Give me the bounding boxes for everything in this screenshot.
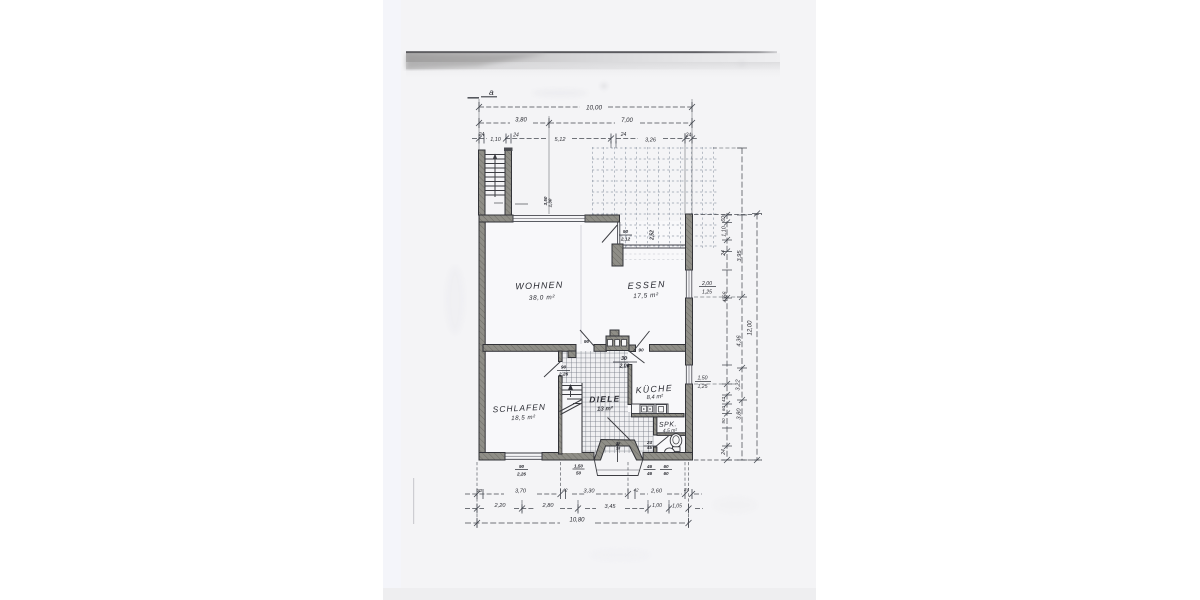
svg-text:46: 46 (646, 464, 653, 469)
svg-text:2,60: 2,60 (650, 489, 663, 495)
svg-text:DIELE: DIELE (589, 393, 621, 404)
svg-text:10,80: 10,80 (569, 518, 585, 524)
svg-text:4,36: 4,36 (737, 335, 743, 347)
svg-text:1,25: 1,25 (702, 290, 712, 296)
svg-text:3,70: 3,70 (515, 489, 527, 495)
svg-text:1,05: 1,05 (672, 504, 682, 510)
svg-text:2,52: 2,52 (650, 230, 656, 241)
svg-text:3,22: 3,22 (736, 379, 742, 391)
svg-text:3,45: 3,45 (605, 504, 617, 510)
svg-text:13 m²: 13 m² (597, 405, 614, 413)
svg-text:24: 24 (721, 250, 727, 257)
svg-text:60: 60 (721, 216, 727, 222)
svg-text:42: 42 (633, 488, 639, 493)
svg-text:3,30: 3,30 (584, 489, 596, 495)
svg-text:2,26: 2,26 (516, 472, 526, 477)
svg-text:1,10: 1,10 (722, 226, 728, 237)
svg-text:1,10: 1,10 (490, 137, 501, 143)
svg-text:1,50: 1,50 (697, 376, 707, 382)
svg-text:90: 90 (638, 348, 644, 354)
svg-text:2,26: 2,26 (558, 372, 569, 378)
svg-text:90: 90 (721, 418, 726, 424)
svg-text:42: 42 (562, 488, 568, 493)
svg-text:90: 90 (584, 339, 590, 345)
svg-text:1,00: 1,00 (652, 503, 662, 509)
svg-text:24: 24 (721, 449, 727, 456)
svg-text:3,95: 3,95 (737, 250, 743, 262)
svg-text:24: 24 (620, 132, 627, 138)
svg-text:1,50: 1,50 (574, 464, 583, 469)
svg-text:10,00: 10,00 (586, 105, 602, 112)
svg-text:2,80: 2,80 (542, 503, 555, 509)
svg-text:60: 60 (663, 471, 669, 476)
svg-text:ESSEN: ESSEN (627, 279, 666, 291)
svg-text:WOHNEN: WOHNEN (515, 280, 564, 292)
svg-text:a: a (489, 87, 494, 97)
svg-text:50: 50 (576, 471, 582, 476)
svg-text:42: 42 (721, 397, 726, 403)
svg-text:4,66: 4,66 (723, 291, 729, 303)
svg-text:8,4 m²: 8,4 m² (647, 394, 665, 401)
svg-text:90: 90 (519, 464, 525, 469)
svg-text:5,12: 5,12 (555, 137, 567, 143)
svg-text:17,5 m²: 17,5 m² (633, 292, 659, 300)
svg-text:1,25: 1,25 (697, 384, 707, 390)
svg-text:90: 90 (561, 365, 567, 371)
svg-text:38,0 m²: 38,0 m² (529, 294, 556, 302)
svg-text:90: 90 (623, 229, 629, 235)
svg-text:12,00: 12,00 (748, 320, 754, 336)
svg-text:2,12: 2,12 (620, 237, 631, 243)
svg-text:3,26: 3,26 (645, 138, 657, 144)
svg-text:24: 24 (512, 133, 519, 139)
svg-text:2,06: 2,06 (618, 364, 629, 370)
svg-text:24: 24 (478, 132, 485, 138)
svg-text:3,80: 3,80 (737, 408, 743, 420)
svg-text:24: 24 (685, 133, 692, 139)
svg-text:18,5 m²: 18,5 m² (511, 414, 536, 422)
svg-text:18: 18 (616, 446, 621, 451)
svg-text:60: 60 (721, 406, 726, 412)
svg-text:7,00: 7,00 (621, 118, 633, 124)
svg-text:46: 46 (646, 471, 653, 476)
svg-text:4,5 m²: 4,5 m² (663, 428, 678, 435)
svg-text:1,30: 1,30 (548, 198, 553, 207)
svg-text:30: 30 (621, 356, 627, 362)
svg-text:30: 30 (477, 488, 483, 493)
svg-text:60: 60 (663, 464, 669, 469)
svg-text:3,80: 3,80 (515, 118, 527, 124)
svg-text:2,20: 2,20 (494, 503, 507, 509)
svg-text:2,00: 2,00 (701, 281, 712, 287)
svg-text:24: 24 (683, 487, 690, 492)
